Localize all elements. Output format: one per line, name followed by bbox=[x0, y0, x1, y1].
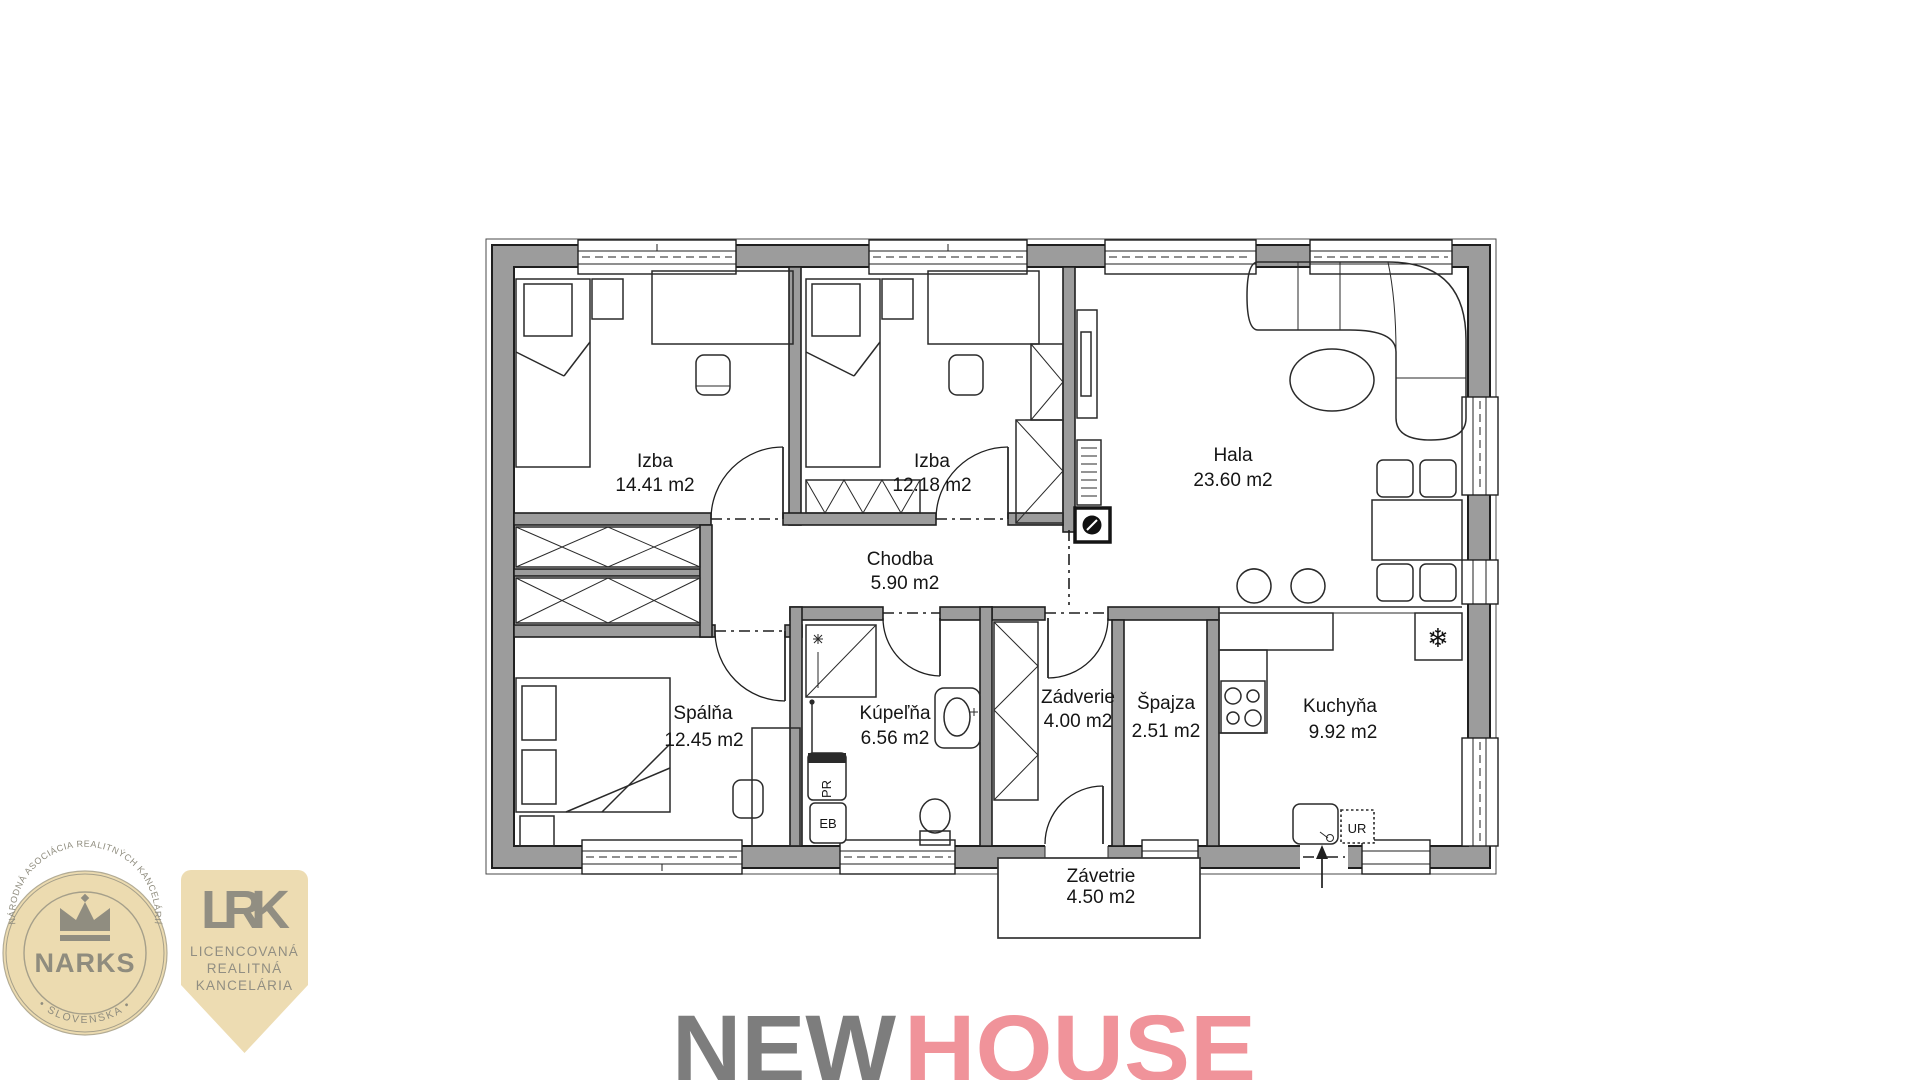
washbasin bbox=[935, 688, 980, 748]
lrk-line3: KANCELÁRIA bbox=[196, 978, 294, 993]
tv-cabinet bbox=[1077, 310, 1097, 418]
boiler: EB bbox=[810, 803, 846, 843]
narks-logo: NÁRODNÁ ASOCIÁCIA REALITNÝCH KANCELÁRIÍ … bbox=[3, 839, 167, 1035]
room-label-hala: Hala bbox=[1213, 445, 1253, 466]
furniture-spalna bbox=[516, 678, 800, 846]
fridge: ❄ bbox=[1415, 613, 1462, 660]
door-zadverie-top bbox=[1048, 618, 1108, 678]
wall-izba2-hala bbox=[1063, 267, 1075, 532]
desk bbox=[652, 271, 793, 344]
walls bbox=[486, 239, 1496, 874]
room-label-spajza: Špajza bbox=[1137, 692, 1196, 714]
counter bbox=[1219, 613, 1333, 650]
chair bbox=[733, 780, 763, 818]
window-dining-side bbox=[1462, 560, 1498, 604]
room-area-izba2: 12.18 m2 bbox=[892, 475, 971, 496]
bed bbox=[806, 279, 880, 467]
window-hala-right bbox=[1310, 240, 1452, 274]
window-hala-side bbox=[1462, 397, 1498, 495]
wall-chodba-bottom-a bbox=[790, 607, 883, 620]
room-area-kuchyna: 9.92 m2 bbox=[1309, 722, 1378, 743]
room-area-zadverie: 4.00 m2 bbox=[1044, 711, 1113, 732]
pillow bbox=[524, 284, 572, 336]
room-area-hala: 23.60 m2 bbox=[1193, 470, 1272, 491]
coffee-table bbox=[1290, 349, 1374, 411]
door-entrance bbox=[1045, 786, 1103, 844]
newhouse-logo: NEW HOUSE bbox=[672, 996, 1256, 1080]
window-spalna bbox=[582, 840, 742, 874]
blanket-fold bbox=[516, 352, 564, 376]
room-label-izba1: Izba bbox=[637, 451, 673, 472]
lrk-logo: LRK LICENCOVANÁ REALITNÁ KANCELÁRIA bbox=[181, 870, 308, 1053]
narks-title: NARKS bbox=[34, 948, 135, 978]
toilet bbox=[920, 799, 950, 845]
dishwasher-label: UR bbox=[1348, 821, 1367, 836]
furniture-zadverie bbox=[994, 622, 1038, 800]
blanket-fold bbox=[602, 744, 670, 812]
room-area-spajza: 2.51 m2 bbox=[1132, 721, 1201, 742]
dishwasher: UR bbox=[1341, 810, 1374, 843]
sink bbox=[1293, 804, 1338, 844]
wall-chodba-top-a bbox=[514, 513, 711, 525]
chair bbox=[1377, 460, 1413, 497]
wall-izba1-izba2 bbox=[789, 267, 801, 525]
chair bbox=[696, 355, 730, 395]
dining-table bbox=[1372, 500, 1462, 560]
pillow bbox=[522, 750, 556, 804]
nightstand bbox=[520, 816, 554, 846]
room-label-zadverie: Zádverie bbox=[1041, 687, 1115, 708]
blanket-fold bbox=[806, 352, 854, 376]
blanket-fold bbox=[564, 342, 590, 376]
wall-spalna-top-a bbox=[514, 625, 715, 637]
lrk-line2: REALITNÁ bbox=[207, 961, 283, 976]
chair bbox=[1420, 564, 1456, 601]
room-label-izba2: Izba bbox=[914, 451, 950, 472]
wall-zadverie-top-b bbox=[1108, 607, 1219, 620]
lrk-line1: LICENCOVANÁ bbox=[190, 944, 299, 959]
stove-fireplace-icon bbox=[1075, 508, 1110, 542]
room-area-kupelna: 6.56 m2 bbox=[861, 728, 930, 749]
furniture-izba1 bbox=[516, 271, 793, 467]
blanket-fold bbox=[566, 768, 670, 812]
wall-wardrobe-divider bbox=[514, 569, 700, 576]
room-area-izba1: 14.41 m2 bbox=[615, 475, 694, 496]
window-izba2 bbox=[869, 240, 1027, 274]
room-label-kuchyna: Kuchyňa bbox=[1303, 696, 1377, 717]
desk bbox=[928, 271, 1039, 344]
bed bbox=[516, 279, 590, 467]
window-kuchyna bbox=[1362, 840, 1430, 874]
room-area-chodba: 5.90 m2 bbox=[871, 573, 940, 594]
dining-set bbox=[1372, 460, 1462, 601]
wardrobe bbox=[1016, 344, 1063, 523]
nightstand bbox=[592, 279, 623, 319]
shower bbox=[806, 625, 876, 697]
wall-chodba-top-b bbox=[783, 513, 936, 525]
corner-sofa bbox=[1247, 262, 1466, 440]
stove bbox=[1221, 681, 1265, 733]
bar-stools bbox=[1237, 569, 1325, 603]
snowflake-icon: ❄ bbox=[1427, 623, 1449, 653]
pillow bbox=[522, 686, 556, 740]
blanket-fold bbox=[854, 342, 880, 376]
wall-spajza-kuchyna bbox=[1207, 620, 1219, 846]
wall-kupelna-zadverie bbox=[980, 607, 992, 846]
chair bbox=[949, 355, 983, 395]
room-labels: Izba 14.41 m2 Izba 12.18 m2 Hala 23.60 m… bbox=[615, 445, 1377, 908]
double-bed bbox=[516, 678, 670, 812]
floor-plan-drawing: PR EB ❄ bbox=[0, 0, 1920, 1080]
room-label-kupelna: Kúpeľňa bbox=[859, 703, 930, 724]
room-area-spalna: 12.45 m2 bbox=[664, 730, 743, 751]
radiator bbox=[1077, 440, 1101, 505]
chair bbox=[1377, 564, 1413, 601]
towel-rail bbox=[809, 699, 814, 760]
room-label-zavetrie: Závetrie bbox=[1067, 866, 1136, 887]
door-spalna bbox=[715, 631, 785, 701]
hall-wardrobe bbox=[994, 622, 1038, 800]
wall-zadverie-top-a bbox=[992, 607, 1045, 620]
built-in-wardrobe bbox=[516, 527, 700, 567]
window-hala-left bbox=[1105, 240, 1256, 274]
door-izba1 bbox=[711, 447, 783, 519]
door-kupelna bbox=[883, 618, 940, 676]
newhouse-word-new: NEW bbox=[672, 996, 896, 1080]
built-in-wardrobe bbox=[516, 578, 700, 623]
room-area-zavetrie: 4.50 m2 bbox=[1067, 887, 1136, 908]
lrk-abbr: LRK bbox=[201, 880, 290, 940]
nightstand bbox=[882, 279, 913, 319]
window-izba1 bbox=[578, 240, 736, 274]
room-label-chodba: Chodba bbox=[867, 549, 934, 570]
wall-corridor-leg bbox=[700, 525, 712, 637]
washing-machine: PR bbox=[808, 753, 846, 800]
window-kuchyna-side bbox=[1462, 738, 1498, 846]
room-label-spalna: Spálňa bbox=[673, 703, 733, 724]
newhouse-word-house: HOUSE bbox=[904, 996, 1256, 1080]
chair bbox=[1420, 460, 1456, 497]
washing-machine-label: PR bbox=[819, 780, 834, 798]
furniture-hala bbox=[1075, 262, 1466, 603]
page: PR EB ❄ bbox=[0, 0, 1920, 1080]
wall-zadverie-spajza bbox=[1112, 620, 1124, 846]
pillow bbox=[812, 284, 860, 336]
boiler-label: EB bbox=[819, 816, 836, 831]
